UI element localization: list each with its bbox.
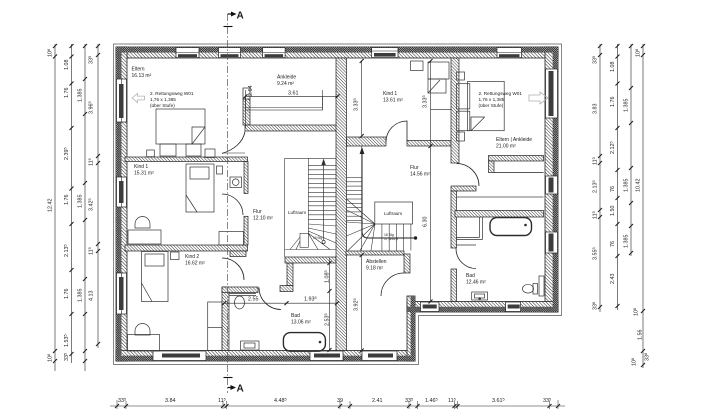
svg-text:39: 39	[337, 398, 343, 404]
svg-text:13.06 m²: 13.06 m²	[291, 320, 311, 326]
svg-text:12.46 m²: 12.46 m²	[466, 280, 486, 286]
svg-text:12.10 m²: 12.10 m²	[253, 216, 273, 222]
svg-text:Flur: Flur	[410, 165, 419, 171]
svg-text:Luftraum: Luftraum	[288, 210, 306, 215]
svg-text:2. Rettungsweg W01: 2. Rettungsweg W01	[150, 91, 194, 96]
svg-text:1.385: 1.385	[624, 99, 630, 113]
svg-text:Luftraum: Luftraum	[384, 211, 402, 216]
svg-text:1.385: 1.385	[624, 235, 630, 249]
svg-text:3.83: 3.83	[593, 104, 599, 115]
svg-text:1.385: 1.385	[78, 289, 84, 303]
svg-text:Kind 1: Kind 1	[383, 91, 397, 97]
svg-text:17,5/26,9: 17,5/26,9	[384, 237, 398, 241]
svg-text:1.08: 1.08	[64, 60, 70, 71]
svg-text:1.76: 1.76	[64, 289, 70, 300]
svg-text:12.42: 12.42	[48, 199, 54, 213]
svg-text:16.62 m²: 16.62 m²	[185, 261, 205, 267]
svg-text:Bad: Bad	[291, 313, 300, 319]
svg-text:1.50: 1.50	[610, 206, 616, 217]
svg-text:Eltern | Ankleide: Eltern | Ankleide	[496, 137, 532, 143]
svg-text:9.18 m²: 9.18 m²	[366, 266, 383, 272]
svg-text:3.84: 3.84	[165, 398, 176, 404]
svg-text:2.43: 2.43	[610, 274, 616, 285]
svg-text:21.00 m²: 21.00 m²	[496, 144, 516, 150]
svg-text:76: 76	[610, 241, 616, 247]
svg-text:Bad: Bad	[466, 273, 475, 279]
svg-text:Eltern: Eltern	[132, 67, 145, 73]
svg-text:1.08: 1.08	[610, 62, 616, 73]
svg-text:Kind 1: Kind 1	[134, 164, 148, 170]
svg-text:14.56 m²: 14.56 m²	[410, 172, 430, 178]
svg-text:15.31 m²: 15.31 m²	[134, 171, 154, 177]
svg-text:1.385: 1.385	[624, 179, 630, 193]
svg-text:13.61 m²: 13.61 m²	[383, 98, 403, 104]
svg-text:76: 76	[610, 186, 616, 192]
svg-text:1.76: 1.76	[64, 195, 70, 206]
svg-text:1.76: 1.76	[610, 97, 616, 108]
svg-text:(über Stufe): (über Stufe)	[150, 103, 175, 108]
svg-text:2. Rettungsweg W01: 2. Rettungsweg W01	[479, 91, 523, 96]
svg-text:2.64: 2.64	[248, 86, 254, 97]
svg-text:Ankleide: Ankleide	[277, 75, 296, 81]
svg-text:(über Stufe): (über Stufe)	[479, 103, 504, 108]
svg-text:1.385: 1.385	[78, 89, 84, 103]
svg-text:16.13 m²: 16.13 m²	[132, 73, 152, 79]
svg-text:A: A	[237, 11, 244, 22]
svg-text:6.30: 6.30	[423, 217, 429, 228]
svg-text:Kind 2: Kind 2	[185, 254, 199, 260]
svg-text:Flur: Flur	[253, 209, 262, 215]
svg-text:16 Stg: 16 Stg	[313, 236, 322, 240]
svg-text:3.61: 3.61	[288, 90, 299, 96]
svg-text:2.41: 2.41	[372, 398, 383, 404]
svg-text:1,76 x 1,385: 1,76 x 1,385	[479, 97, 505, 102]
svg-text:A: A	[237, 384, 244, 395]
svg-text:1.385: 1.385	[78, 195, 84, 209]
svg-text:1.56: 1.56	[638, 330, 644, 341]
svg-text:1.76: 1.76	[64, 88, 70, 99]
svg-text:10.42: 10.42	[636, 179, 642, 193]
svg-text:1,76 x 1,385: 1,76 x 1,385	[150, 97, 176, 102]
svg-text:2.55: 2.55	[248, 297, 259, 303]
svg-text:Abstellen: Abstellen	[366, 259, 387, 265]
svg-text:4.13: 4.13	[89, 291, 95, 302]
svg-text:9.24 m²: 9.24 m²	[277, 81, 294, 87]
